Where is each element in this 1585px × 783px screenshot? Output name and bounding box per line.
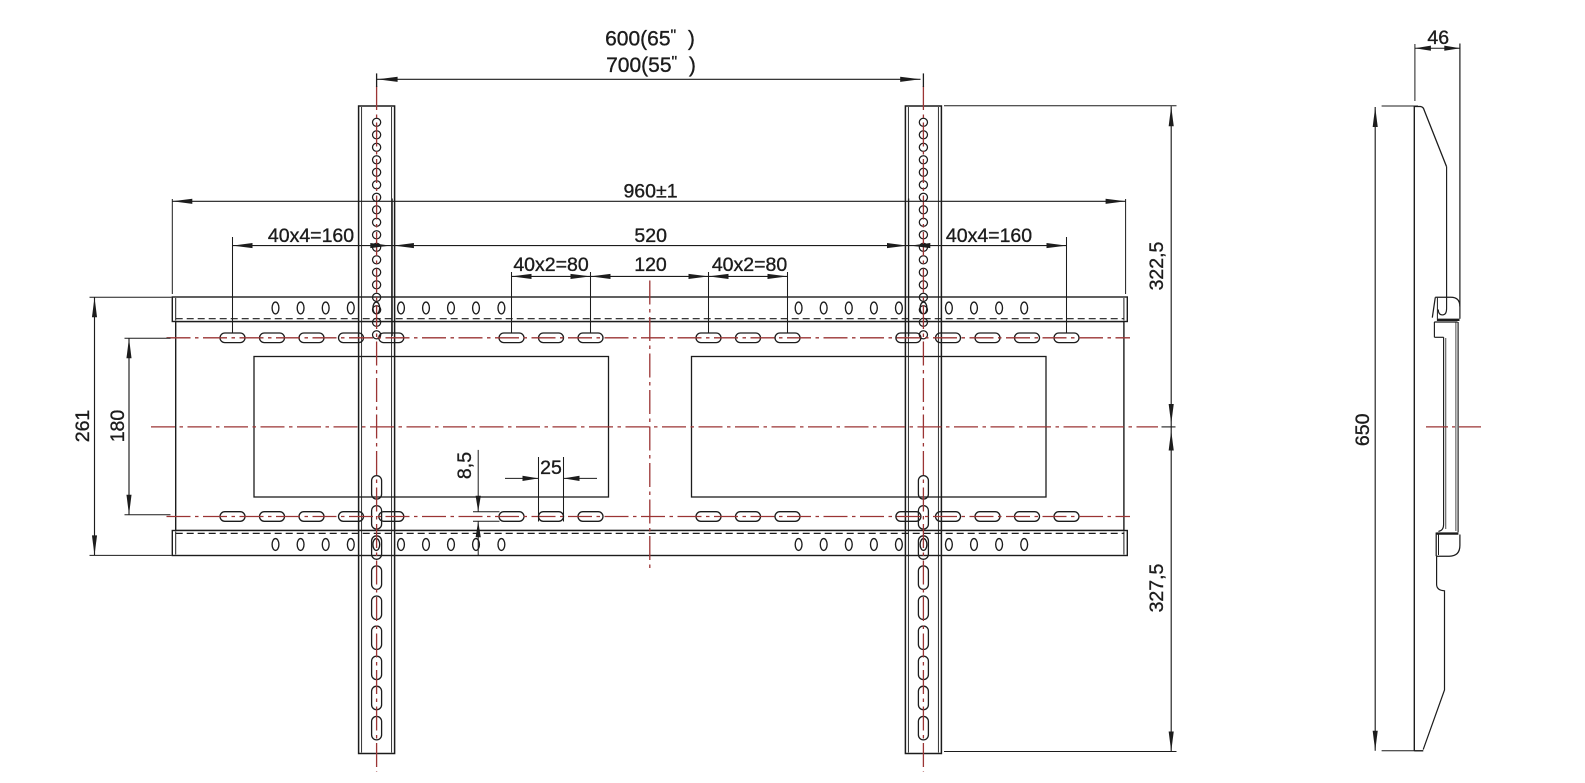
svg-text:40x4=160: 40x4=160 — [268, 225, 354, 247]
svg-text:327,5: 327,5 — [1146, 563, 1168, 612]
svg-text:40x2=80: 40x2=80 — [712, 254, 788, 276]
svg-text:960±1: 960±1 — [623, 181, 677, 203]
svg-text:8,5: 8,5 — [454, 452, 476, 479]
svg-text:25: 25 — [540, 457, 562, 479]
svg-text:40x2=80: 40x2=80 — [513, 254, 589, 276]
svg-text:40x4=160: 40x4=160 — [946, 225, 1032, 247]
svg-text:180: 180 — [107, 410, 129, 443]
svg-text:120: 120 — [634, 254, 667, 276]
svg-text:261: 261 — [72, 410, 94, 443]
svg-text:322,5: 322,5 — [1146, 241, 1168, 290]
svg-text:650: 650 — [1352, 413, 1374, 446]
svg-text:700(55" ): 700(55" ) — [606, 54, 696, 77]
svg-text:600(65" ): 600(65" ) — [605, 28, 695, 51]
svg-text:520: 520 — [634, 225, 667, 247]
